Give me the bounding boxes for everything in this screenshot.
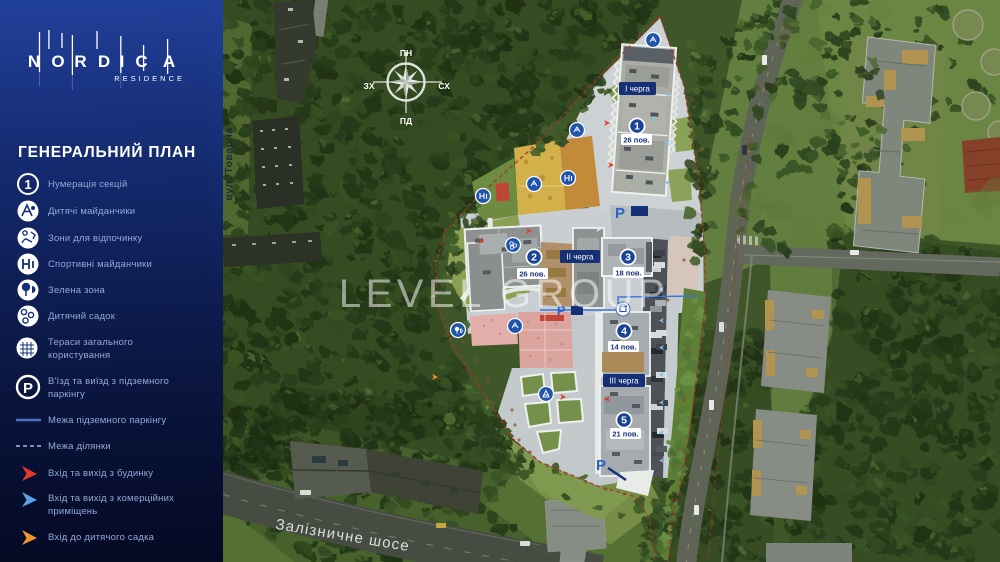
svg-text:14 пов.: 14 пов. <box>610 343 636 352</box>
svg-text:P: P <box>615 205 625 222</box>
svg-text:вул. Товарна: вул. Товарна <box>223 127 235 200</box>
svg-text:R: R <box>74 52 86 71</box>
svg-text:I: I <box>120 52 125 71</box>
svg-text:ПН: ПН <box>400 48 412 58</box>
svg-text:1: 1 <box>634 121 640 133</box>
svg-text:ЗХ: ЗХ <box>364 81 375 91</box>
svg-text:A: A <box>163 52 175 71</box>
svg-text:RESIDENCE: RESIDENCE <box>114 74 185 83</box>
svg-text:СХ: СХ <box>438 81 450 91</box>
svg-text:2: 2 <box>531 252 537 264</box>
svg-text:C: C <box>135 52 147 71</box>
svg-text:ПД: ПД <box>400 116 412 126</box>
svg-text:1: 1 <box>24 177 31 192</box>
svg-text:3: 3 <box>625 252 631 264</box>
svg-text:N: N <box>28 52 40 71</box>
svg-text:ІІ черга: ІІ черга <box>567 253 594 262</box>
svg-text:26 пов.: 26 пов. <box>623 136 649 145</box>
svg-text:P: P <box>596 457 606 474</box>
svg-text:ІІІ черга: ІІІ черга <box>609 377 639 386</box>
svg-text:21 пов.: 21 пов. <box>612 430 638 439</box>
svg-text:LEVEL GROUP: LEVEL GROUP <box>339 272 669 316</box>
svg-text:5: 5 <box>621 415 627 427</box>
svg-text:І черга: І черга <box>625 85 650 94</box>
svg-text:O: O <box>51 52 64 71</box>
svg-text:4: 4 <box>621 326 627 338</box>
svg-text:D: D <box>98 52 110 71</box>
svg-text:P: P <box>23 380 33 397</box>
